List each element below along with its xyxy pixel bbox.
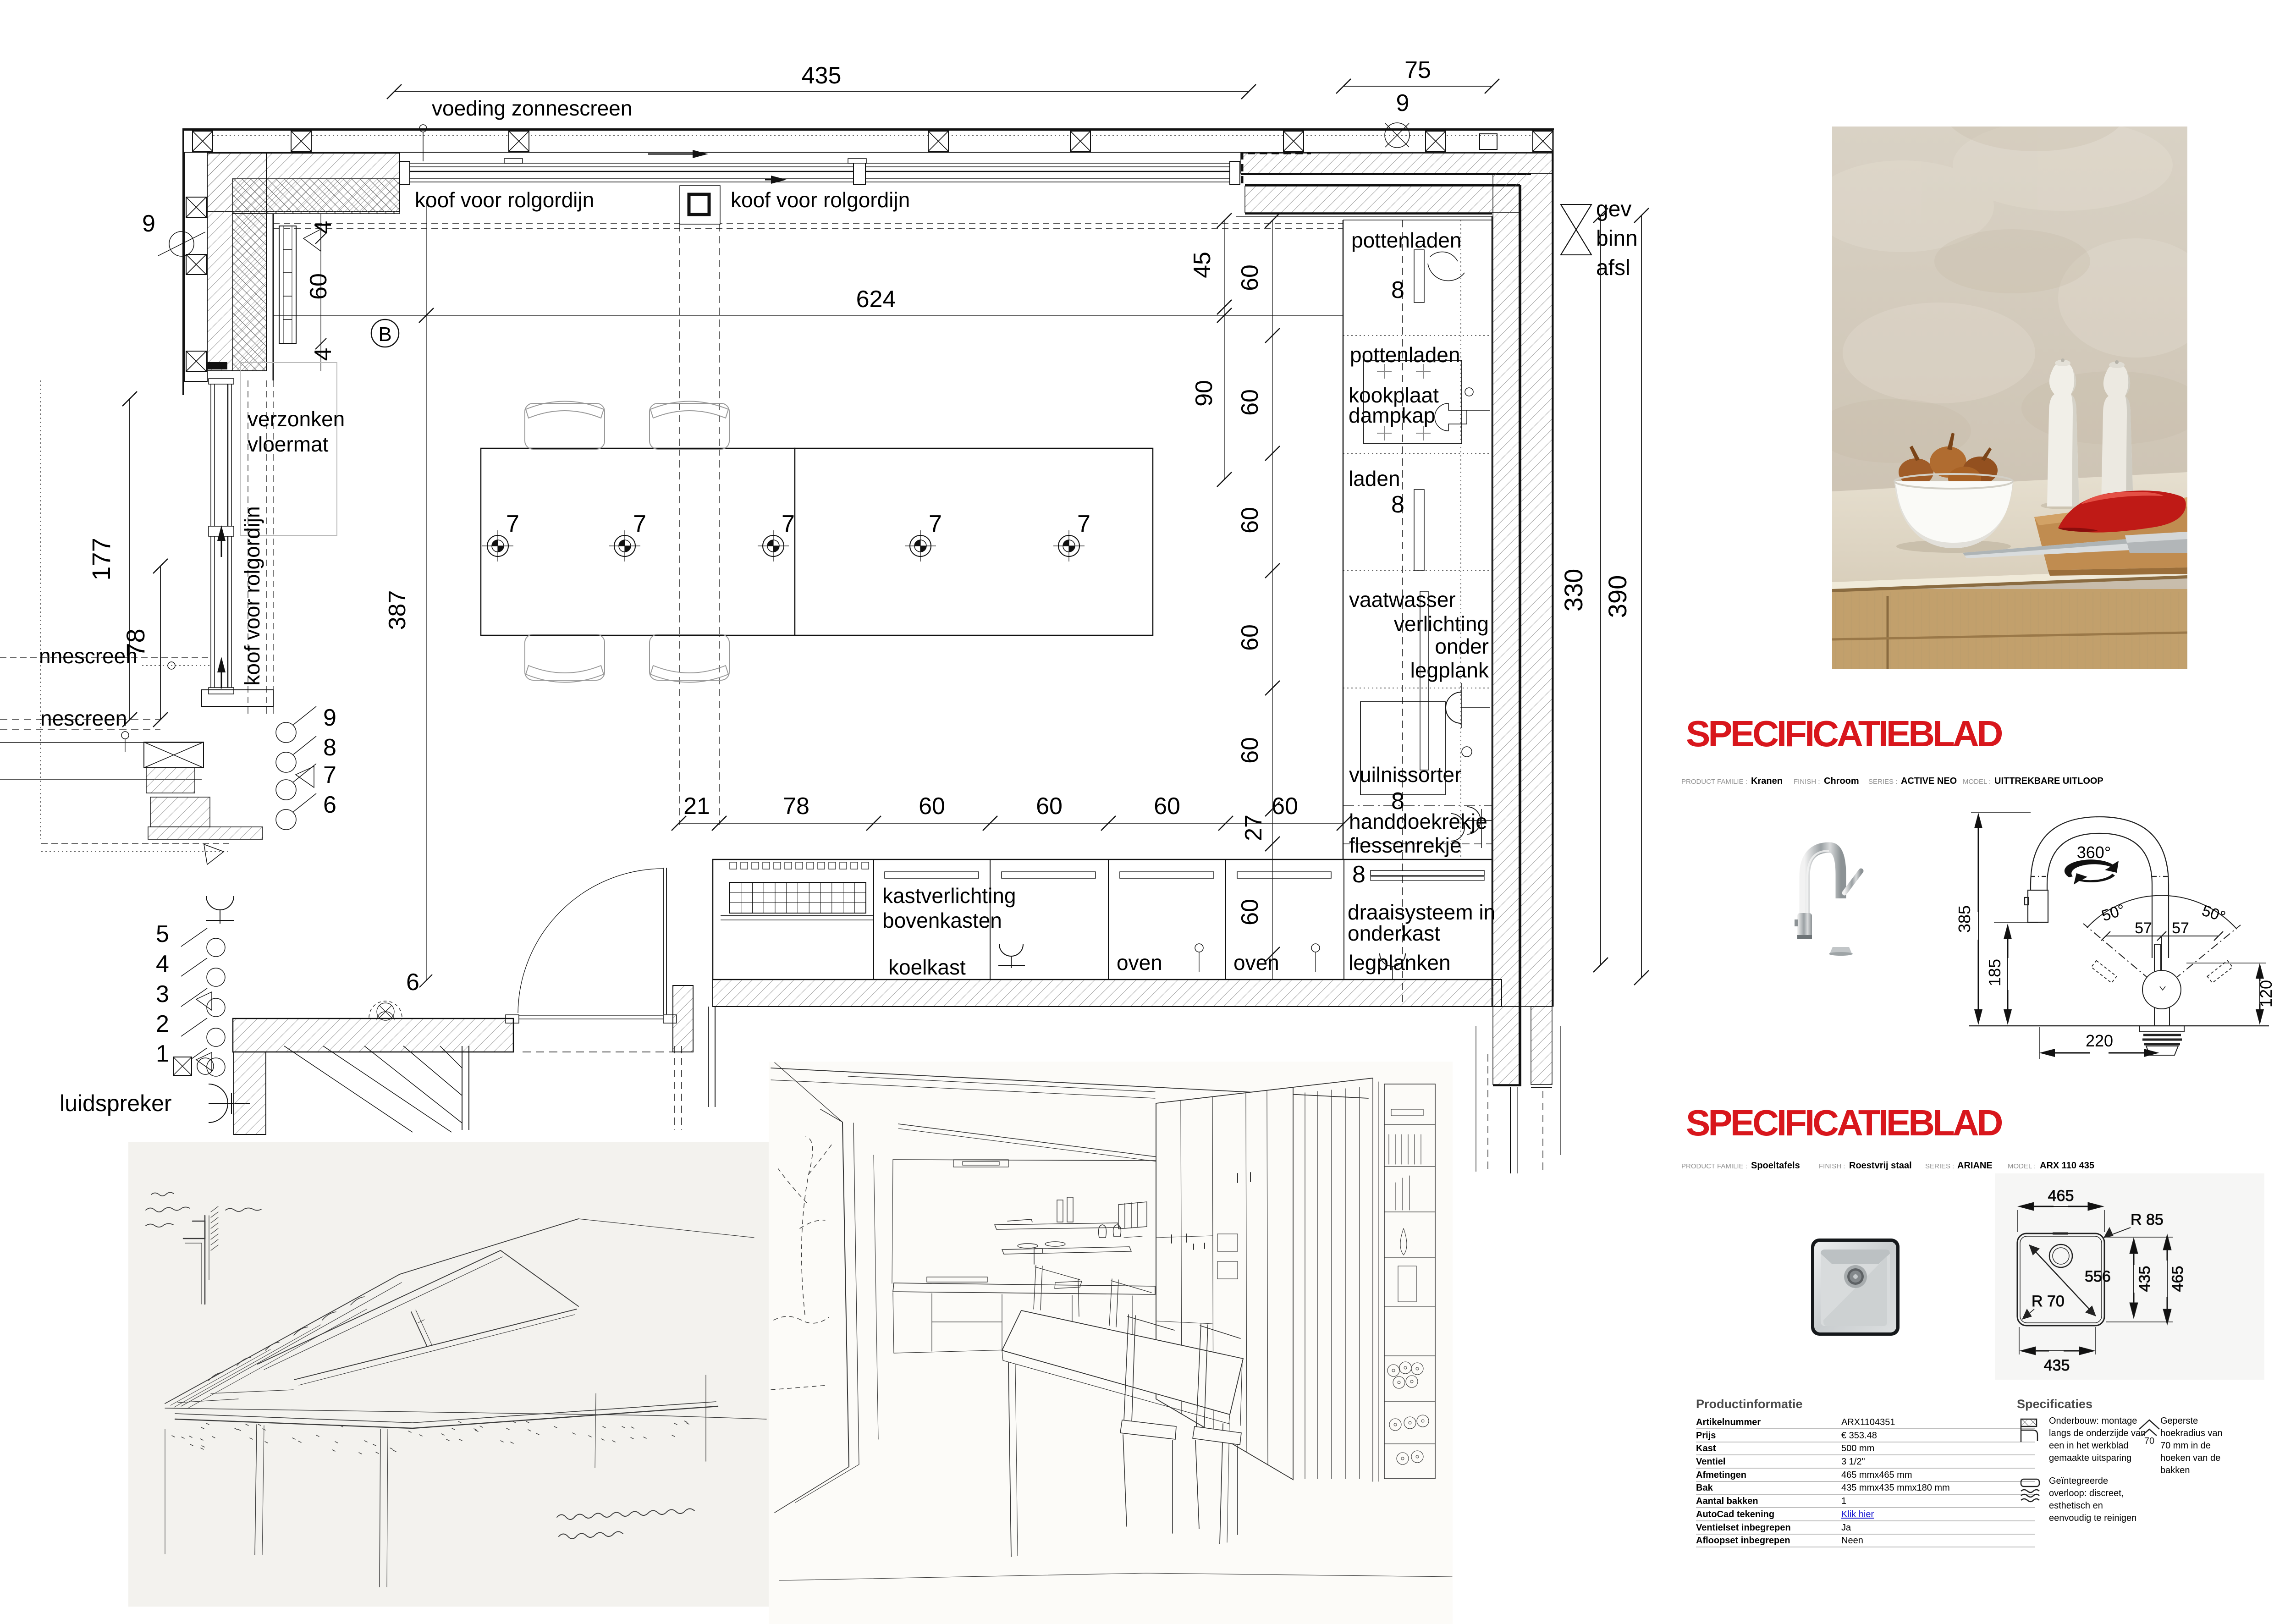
svg-text:70 mm in de: 70 mm in de [2160,1441,2211,1451]
svg-text:60: 60 [305,273,332,300]
svg-text:6: 6 [406,969,419,996]
svg-text:7: 7 [506,511,519,537]
svg-text:7: 7 [782,511,795,537]
svg-text:FINISH :: FINISH : [1819,1162,1845,1170]
svg-text:onderkast: onderkast [1348,921,1440,945]
svg-text:Ventiel: Ventiel [1696,1457,1725,1467]
svg-text:verzonken: verzonken [248,407,345,431]
svg-text:185: 185 [1985,959,2004,986]
svg-text:60: 60 [919,793,945,820]
svg-text:Geperste: Geperste [2160,1416,2198,1426]
svg-text:Geïntegreerde: Geïntegreerde [2049,1476,2108,1486]
svg-text:bakken: bakken [2160,1465,2190,1475]
svg-text:voeding zonnescreen: voeding zonnescreen [432,96,632,120]
svg-text:vuilnissorter: vuilnissorter [1349,763,1461,787]
svg-text:een in het werkblad: een in het werkblad [2049,1441,2128,1451]
svg-text:60: 60 [1237,737,1263,764]
svg-text:vaatwasser: vaatwasser [1349,588,1456,611]
svg-text:220: 220 [2086,1031,2113,1050]
svg-text:500 mm: 500 mm [1841,1443,1874,1453]
svg-text:435: 435 [802,62,842,89]
svg-text:465: 465 [2169,1266,2186,1292]
svg-text:57: 57 [2172,919,2189,937]
svg-text:Spoeltafels: Spoeltafels [1751,1161,1800,1171]
svg-text:nnescreen: nnescreen [39,644,138,668]
svg-text:MODEL :: MODEL : [1963,778,1991,786]
svg-text:360°: 360° [2077,843,2111,862]
svg-text:9: 9 [323,705,336,731]
svg-text:€ 353.48: € 353.48 [1841,1431,1877,1441]
svg-text:8: 8 [1391,491,1404,518]
svg-text:8: 8 [1352,861,1366,888]
svg-text:60: 60 [1036,793,1063,820]
svg-text:koof voor rolgordijn: koof voor rolgordijn [731,188,910,212]
svg-text:Productinformatie: Productinformatie [1696,1397,1803,1411]
svg-text:3 1/2": 3 1/2" [1841,1457,1865,1467]
svg-text:78: 78 [783,793,809,820]
svg-text:Kast: Kast [1696,1443,1716,1453]
svg-text:Bak: Bak [1696,1483,1713,1493]
svg-text:AutoCad tekening: AutoCad tekening [1696,1509,1774,1519]
svg-text:Roestvrij staal: Roestvrij staal [1849,1161,1912,1171]
svg-text:556: 556 [2085,1268,2111,1285]
svg-text:SPECIFICATIEBLAD: SPECIFICATIEBLAD [1686,1102,2002,1143]
svg-text:390: 390 [1603,575,1632,618]
svg-text:70: 70 [2144,1436,2154,1446]
svg-text:flessenrekje: flessenrekje [1349,833,1461,857]
svg-text:verlichting: verlichting [1394,612,1489,636]
svg-text:90: 90 [1191,380,1217,407]
svg-text:9: 9 [1396,90,1410,116]
svg-text:Aantal bakken: Aantal bakken [1696,1496,1758,1506]
svg-text:laden: laden [1349,467,1400,490]
svg-text:4: 4 [310,221,336,234]
svg-text:afsl: afsl [1596,256,1630,280]
svg-text:gemaakte uitsparing: gemaakte uitsparing [2049,1453,2131,1463]
svg-text:4: 4 [156,951,169,977]
svg-text:B: B [378,323,391,346]
svg-text:7: 7 [323,762,336,788]
svg-text:60: 60 [1237,264,1263,291]
svg-text:SERIES :: SERIES : [1925,1162,1954,1170]
svg-text:27: 27 [1240,815,1267,841]
svg-text:6: 6 [323,792,336,818]
svg-text:Chroom: Chroom [1824,776,1859,786]
svg-text:eenvoudig te reinigen: eenvoudig te reinigen [2049,1513,2136,1523]
svg-text:hoeken van de: hoeken van de [2160,1453,2220,1463]
svg-text:45: 45 [1189,252,1216,278]
svg-text:overloop: discreet,: overloop: discreet, [2049,1488,2124,1498]
svg-text:PRODUCT FAMILIE :: PRODUCT FAMILIE : [1681,1162,1747,1170]
svg-text:Prijs: Prijs [1696,1431,1716,1441]
svg-text:onder: onder [1435,634,1489,658]
svg-text:1: 1 [1841,1496,1846,1506]
svg-text:pottenladen: pottenladen [1351,228,1461,252]
svg-text:langs de onderzijde van: langs de onderzijde van [2049,1428,2146,1438]
svg-text:Specificaties: Specificaties [2017,1397,2092,1411]
svg-text:ARX 110 435: ARX 110 435 [2040,1161,2094,1171]
svg-text:75: 75 [1404,57,1431,83]
svg-text:PRODUCT FAMILIE :: PRODUCT FAMILIE : [1681,778,1747,786]
svg-text:330: 330 [1559,569,1588,611]
svg-text:handdoekrekje: handdoekrekje [1349,809,1487,833]
svg-text:5: 5 [156,921,169,947]
svg-text:koof voor rolgordijn: koof voor rolgordijn [415,188,594,212]
svg-text:legplank: legplank [1410,658,1489,682]
svg-text:nescreen: nescreen [40,706,127,730]
svg-text:dampkap: dampkap [1349,403,1435,427]
svg-text:60: 60 [1237,624,1263,651]
svg-text:435: 435 [2136,1266,2153,1292]
svg-text:7: 7 [929,511,942,537]
svg-text:435 mmx435 mmx180 mm: 435 mmx435 mmx180 mm [1841,1483,1950,1493]
svg-text:Onderbouw: montage: Onderbouw: montage [2049,1416,2137,1426]
svg-text:MODEL :: MODEL : [2008,1162,2036,1170]
svg-text:UITTREKBARE UITLOOP: UITTREKBARE UITLOOP [1994,776,2103,786]
svg-text:624: 624 [856,286,896,313]
svg-text:9: 9 [142,210,155,237]
svg-text:Neen: Neen [1841,1536,1863,1546]
svg-text:Ventielset inbegrepen: Ventielset inbegrepen [1696,1523,1791,1533]
svg-text:60: 60 [1237,507,1263,534]
svg-text:3: 3 [156,981,169,1007]
svg-text:R 85: R 85 [2131,1211,2164,1228]
svg-text:1: 1 [156,1040,169,1067]
svg-text:pottenladen: pottenladen [1350,343,1460,367]
svg-text:ACTIVE NEO: ACTIVE NEO [1901,776,1957,786]
svg-text:4: 4 [310,348,336,361]
svg-text:gev: gev [1596,197,1631,221]
svg-text:SERIES :: SERIES : [1868,778,1897,786]
svg-text:7: 7 [1077,511,1090,537]
svg-text:177: 177 [87,538,116,580]
svg-text:Klik hier: Klik hier [1841,1509,1874,1519]
svg-text:FINISH :: FINISH : [1794,778,1820,786]
svg-text:7: 7 [633,511,646,537]
svg-text:120: 120 [2257,980,2274,1007]
svg-text:21: 21 [683,793,710,820]
svg-text:legplanken: legplanken [1349,951,1451,974]
svg-text:koof voor rolgordijn: koof voor rolgordijn [240,506,264,685]
svg-text:SPECIFICATIEBLAD: SPECIFICATIEBLAD [1686,713,2002,754]
svg-text:2: 2 [156,1011,169,1037]
svg-text:8: 8 [323,734,336,761]
svg-text:465: 465 [2048,1187,2074,1205]
svg-text:Afloopset inbegrepen: Afloopset inbegrepen [1696,1536,1790,1546]
svg-text:60: 60 [1237,899,1263,925]
svg-text:luidspreker: luidspreker [60,1090,172,1116]
svg-text:Artikelnummer: Artikelnummer [1696,1417,1761,1427]
svg-text:hoekradius van: hoekradius van [2160,1428,2223,1438]
svg-text:Afmetingen: Afmetingen [1696,1470,1746,1480]
svg-text:57: 57 [2135,919,2152,937]
svg-text:ARX1104351: ARX1104351 [1841,1417,1895,1427]
svg-text:koelkast: koelkast [888,955,966,979]
svg-text:draaisysteem in: draaisysteem in [1348,900,1495,924]
svg-text:60: 60 [1237,389,1263,416]
svg-text:ARIANE: ARIANE [1957,1161,1993,1171]
svg-text:435: 435 [2044,1357,2070,1374]
svg-text:R 70: R 70 [2032,1293,2065,1310]
svg-text:kastverlichting: kastverlichting [882,884,1016,908]
svg-text:Kranen: Kranen [1751,776,1783,786]
svg-text:465 mmx465 mm: 465 mmx465 mm [1841,1470,1912,1480]
svg-text:Ja: Ja [1841,1523,1851,1533]
svg-text:60: 60 [1154,793,1180,820]
svg-text:esthetisch en: esthetisch en [2049,1501,2103,1511]
svg-text:387: 387 [384,590,411,630]
svg-text:385: 385 [1955,905,1974,933]
svg-text:binn: binn [1596,226,1638,251]
svg-text:vloermat: vloermat [248,432,329,456]
svg-text:bovenkasten: bovenkasten [882,908,1002,932]
svg-text:8: 8 [1391,277,1404,303]
svg-text:oven: oven [1117,951,1162,974]
